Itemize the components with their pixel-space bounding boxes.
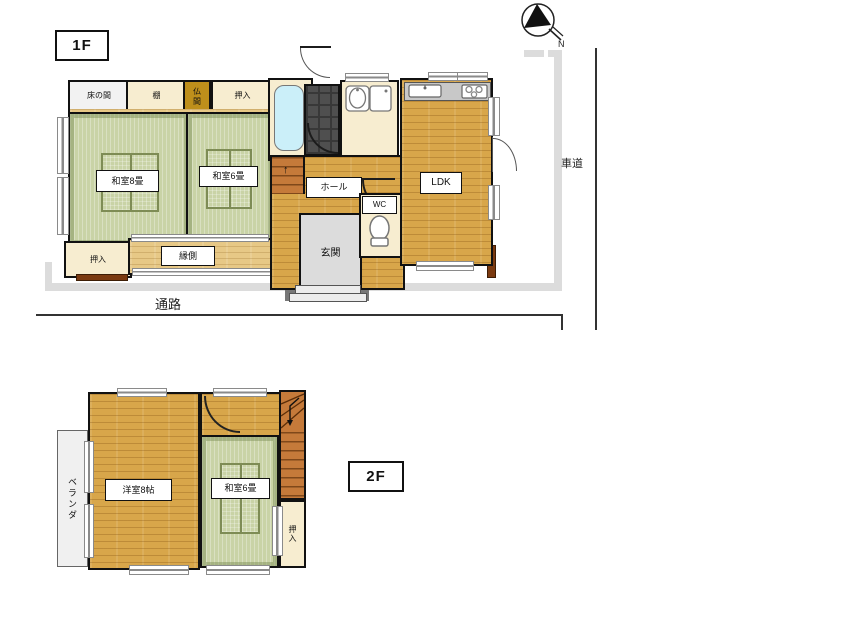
window-2f-right [272,506,283,556]
ldk-window-right-1 [488,97,500,136]
bathtub-icon [274,85,304,151]
boundary-dash-top [524,50,544,57]
kitchen-sink-icon [408,84,442,98]
boundary-left [45,262,52,291]
room-oshiire-2f: 押入 [279,500,306,568]
room-washroom [340,80,399,160]
washroom-window-top [345,73,389,82]
room-oshiire-top: 押入 [211,80,274,112]
kitchen-window-2 [457,72,488,81]
window-2f-top-1 [117,388,167,397]
passage-bottom-line [36,314,563,316]
stairs-1f: ↑ [272,157,305,194]
genkan-label: 玄関 [321,244,341,259]
compass-north-label: N [558,39,565,48]
wc-label: WC [362,196,397,214]
compass: N [516,0,570,48]
stairs-up-arrow: ↑ [283,165,289,176]
room-tokonoma: 床の間 [68,80,130,112]
road-right-line [595,48,597,330]
stove-icon [461,84,488,99]
engawa-window-bottom [132,268,279,276]
floor2-label: 2F [348,461,404,492]
room-oshiire-left: 押入 [64,241,132,278]
room-genkan: 玄関 [299,213,362,289]
ldk-side-door [492,137,518,172]
sill-accent-1 [76,274,128,281]
window-2f-left-2 [84,504,94,558]
porch-step-2 [289,293,367,302]
window-2f-left-1 [84,441,94,493]
road-label: 車道 [561,155,583,171]
window-2f-top-2 [213,388,267,397]
washitsu6-label: 和室6畳 [199,166,258,187]
window-2f-bottom-2 [206,565,270,575]
ldk-window-bottom [416,261,474,271]
toilet-icon [367,215,392,249]
window-left-2 [57,177,69,235]
back-door [300,46,331,77]
boundary-right [554,55,562,291]
washbasin-icon [345,85,370,112]
floor1-label: 1F [55,30,109,61]
passage-label: 通路 [155,294,181,313]
engawa-label: 縁側 [161,246,215,266]
washitsu8-label: 和室8畳 [96,170,159,192]
washing-machine-icon [369,85,392,112]
passage-bottom-tick [561,314,563,330]
room-washitsu6-2f [200,435,279,568]
yoshitsu8-label: 洋室8帖 [105,479,172,501]
stairs-2f [279,390,306,500]
kitchen-window-1 [428,72,458,81]
hall-label: ホール [306,177,362,198]
room-tana: 棚 [126,80,187,112]
engawa-sliding-top [131,234,269,242]
window-2f-bottom-1 [129,565,189,575]
window-left-1 [57,117,69,174]
floorplan-canvas: 通路 車道 N 1F 床の間 棚 仏間 押入 和室8畳 和室6畳 押入 縁側 [0,0,850,624]
stairs-straight [281,432,304,498]
kitchen-counter [404,82,491,101]
ldk-label: LDK [420,172,462,194]
stairs-winder [281,392,304,432]
ldk-window-right-2 [488,185,500,220]
washitsu6-2f-label: 和室6畳 [211,478,270,499]
